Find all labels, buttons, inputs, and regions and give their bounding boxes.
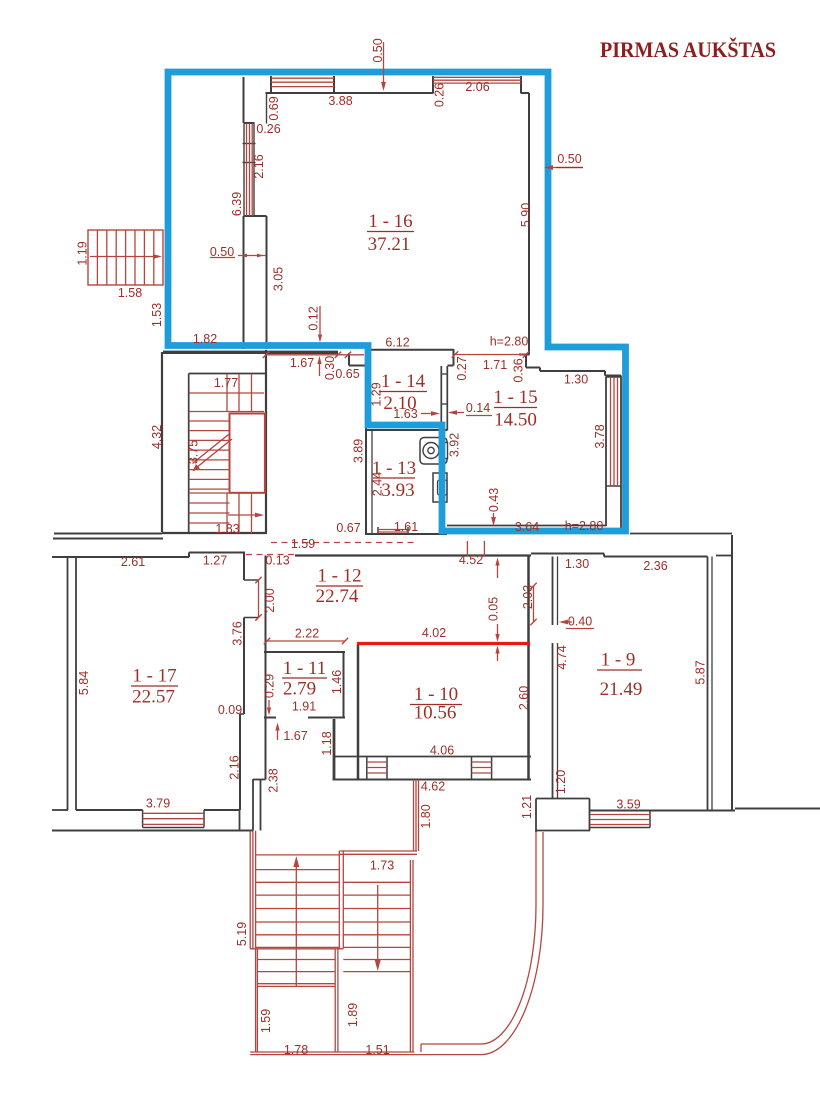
- svg-text:1.77: 1.77: [214, 376, 238, 390]
- svg-text:1 - 13: 1 - 13: [372, 458, 416, 479]
- svg-text:0.29: 0.29: [262, 674, 276, 698]
- svg-text:0.50: 0.50: [210, 245, 234, 259]
- svg-text:1.46: 1.46: [330, 670, 344, 694]
- svg-text:3.76: 3.76: [230, 621, 244, 645]
- svg-text:3.64: 3.64: [515, 520, 539, 534]
- svg-text:0.40: 0.40: [568, 615, 592, 629]
- svg-text:1 - 11: 1 - 11: [283, 658, 327, 679]
- svg-text:2.16: 2.16: [252, 154, 266, 178]
- svg-text:1 - 14: 1 - 14: [381, 371, 426, 392]
- svg-text:1.67: 1.67: [283, 729, 307, 743]
- svg-text:2.03: 2.03: [521, 585, 535, 609]
- svg-text:4.02: 4.02: [422, 626, 446, 640]
- svg-text:3.92: 3.92: [447, 433, 461, 457]
- svg-text:1.73: 1.73: [370, 859, 394, 873]
- svg-text:5.90: 5.90: [519, 203, 533, 227]
- svg-text:2.79: 2.79: [283, 679, 316, 700]
- svg-text:4.06: 4.06: [430, 744, 454, 758]
- svg-text:2.38: 2.38: [266, 768, 280, 792]
- svg-text:1.89: 1.89: [346, 1003, 360, 1027]
- svg-text:1.71: 1.71: [483, 358, 507, 372]
- svg-text:2.00: 2.00: [263, 588, 277, 612]
- svg-text:37.21: 37.21: [368, 234, 411, 255]
- svg-text:h=2.80: h=2.80: [490, 335, 529, 349]
- svg-text:10.56: 10.56: [414, 703, 457, 724]
- svg-text:PIRMAS AUKŠTAS: PIRMAS AUKŠTAS: [600, 37, 776, 62]
- svg-text:1.59: 1.59: [291, 537, 315, 551]
- svg-text:1.19: 1.19: [75, 241, 89, 265]
- svg-text:22.74: 22.74: [316, 586, 359, 607]
- svg-text:0.65: 0.65: [335, 367, 359, 381]
- svg-text:3.75: 3.75: [186, 440, 200, 464]
- svg-text:1.27: 1.27: [203, 554, 227, 568]
- svg-text:0.27: 0.27: [455, 356, 469, 380]
- svg-text:5.87: 5.87: [693, 660, 707, 684]
- svg-text:1.83: 1.83: [215, 522, 239, 536]
- svg-text:1.53: 1.53: [150, 303, 164, 327]
- svg-text:0.50: 0.50: [371, 38, 385, 62]
- svg-text:6.39: 6.39: [230, 192, 244, 216]
- svg-text:1 - 12: 1 - 12: [317, 566, 361, 587]
- svg-text:4.74: 4.74: [555, 645, 569, 669]
- svg-text:1.91: 1.91: [292, 700, 316, 714]
- svg-text:0.50: 0.50: [557, 152, 581, 166]
- svg-text:0.69: 0.69: [267, 96, 281, 120]
- svg-text:2.22: 2.22: [295, 627, 319, 641]
- svg-text:1 - 16: 1 - 16: [368, 211, 412, 232]
- svg-text:3.93: 3.93: [381, 480, 414, 501]
- svg-text:1.18: 1.18: [320, 731, 334, 755]
- svg-text:1.80: 1.80: [419, 804, 433, 828]
- svg-text:0.12: 0.12: [306, 306, 320, 330]
- svg-text:3.79: 3.79: [146, 797, 170, 811]
- svg-text:1.67: 1.67: [290, 356, 314, 370]
- svg-text:2.06: 2.06: [465, 80, 489, 94]
- svg-text:5.19: 5.19: [235, 922, 249, 946]
- svg-text:1.78: 1.78: [284, 1043, 308, 1057]
- svg-text:3.05: 3.05: [271, 267, 285, 291]
- svg-text:1.58: 1.58: [118, 286, 142, 300]
- svg-text:1.30: 1.30: [564, 373, 588, 387]
- svg-text:5.84: 5.84: [77, 671, 91, 695]
- svg-text:3.89: 3.89: [351, 439, 365, 463]
- svg-text:14.50: 14.50: [494, 410, 537, 431]
- svg-text:1.51: 1.51: [365, 1043, 389, 1057]
- svg-text:1 - 15: 1 - 15: [493, 387, 537, 408]
- svg-text:3.88: 3.88: [328, 94, 352, 108]
- svg-text:1.20: 1.20: [554, 770, 568, 794]
- svg-text:0.09: 0.09: [218, 703, 242, 717]
- svg-text:1.82: 1.82: [193, 332, 217, 346]
- svg-text:0.13: 0.13: [265, 554, 289, 568]
- svg-text:0.14: 0.14: [466, 401, 490, 415]
- svg-text:2.16: 2.16: [227, 755, 241, 779]
- svg-text:1.61: 1.61: [394, 520, 418, 534]
- svg-text:h=2.80: h=2.80: [565, 519, 604, 533]
- svg-text:0.67: 0.67: [336, 521, 360, 535]
- svg-text:2.61: 2.61: [121, 555, 145, 569]
- svg-text:1.21: 1.21: [520, 795, 534, 819]
- svg-text:4.62: 4.62: [421, 780, 445, 794]
- svg-text:2.36: 2.36: [643, 559, 667, 573]
- svg-text:4.52: 4.52: [459, 553, 483, 567]
- svg-text:1 - 17: 1 - 17: [132, 666, 176, 687]
- svg-text:22.57: 22.57: [132, 687, 175, 708]
- svg-text:4.32: 4.32: [150, 425, 164, 449]
- svg-text:6.12: 6.12: [385, 336, 409, 350]
- svg-text:1.30: 1.30: [565, 557, 589, 571]
- svg-text:0.26: 0.26: [256, 122, 280, 136]
- svg-text:0.05: 0.05: [486, 597, 500, 621]
- svg-text:0.36: 0.36: [511, 358, 525, 382]
- svg-text:2.60: 2.60: [517, 686, 531, 710]
- svg-text:3.59: 3.59: [616, 798, 640, 812]
- svg-text:1.63: 1.63: [393, 407, 417, 421]
- svg-text:3.78: 3.78: [593, 424, 607, 448]
- svg-text:0.26: 0.26: [432, 83, 446, 107]
- svg-text:21.49: 21.49: [600, 679, 643, 700]
- svg-text:1.59: 1.59: [259, 1009, 273, 1033]
- svg-text:1 - 9: 1 - 9: [601, 650, 636, 671]
- svg-text:0.43: 0.43: [487, 488, 501, 512]
